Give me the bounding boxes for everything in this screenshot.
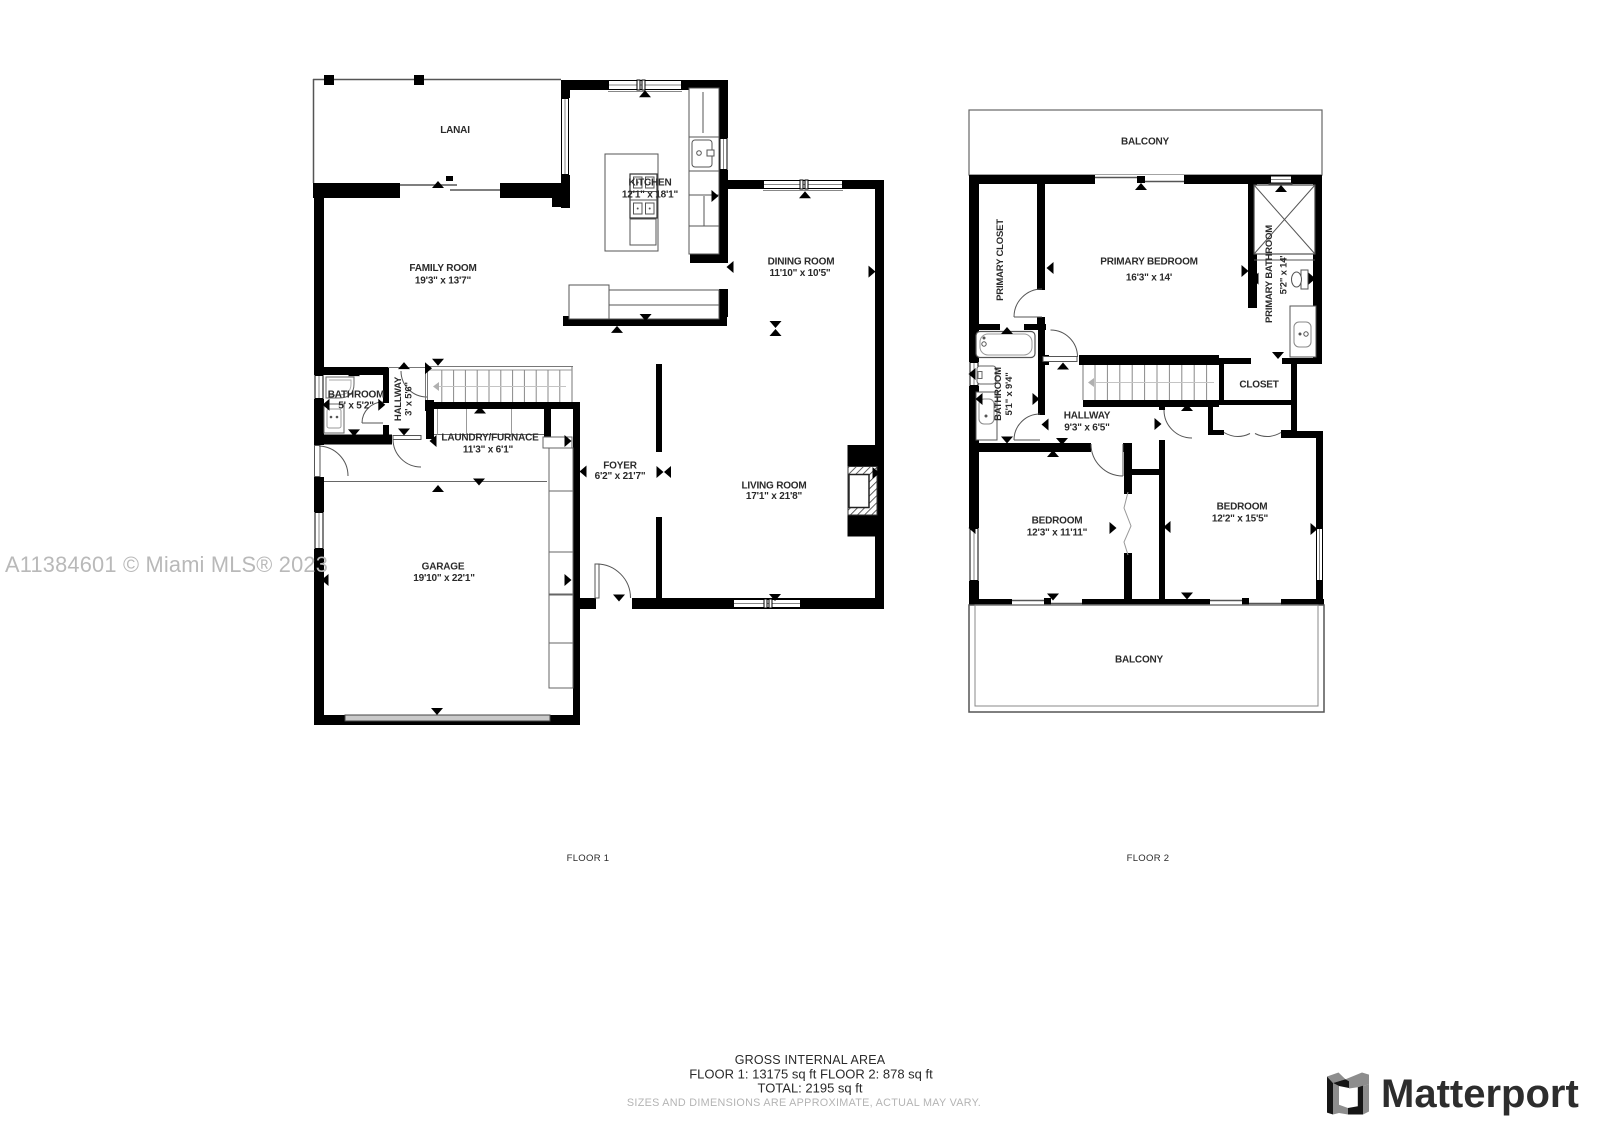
svg-text:BEDROOM: BEDROOM [1032,516,1083,527]
svg-text:FAMILY ROOM: FAMILY ROOM [409,263,476,274]
svg-text:FLOOR 2: FLOOR 2 [1127,853,1170,864]
svg-text:FLOOR 1: FLOOR 1 [567,853,610,864]
svg-text:5' x 5'2": 5' x 5'2" [338,401,374,412]
svg-text:19'10" x 22'1": 19'10" x 22'1" [413,573,475,584]
svg-text:PRIMARY BATHROOM: PRIMARY BATHROOM [1264,225,1275,323]
svg-text:5'2" x 14': 5'2" x 14' [1279,256,1290,295]
svg-text:12'3" x 11'11": 12'3" x 11'11" [1027,528,1088,539]
svg-text:9'3" x 6'5": 9'3" x 6'5" [1064,423,1110,434]
svg-text:12'1" x 18'1": 12'1" x 18'1" [622,190,679,201]
svg-text:Matterport: Matterport [1381,1072,1579,1116]
svg-text:KITCHEN: KITCHEN [628,178,671,189]
svg-text:DINING ROOM: DINING ROOM [768,257,835,268]
svg-text:FOYER: FOYER [603,461,637,472]
svg-text:LANAI: LANAI [440,125,470,136]
svg-text:BALCONY: BALCONY [1121,137,1170,148]
svg-text:GROSS INTERNAL AREA: GROSS INTERNAL AREA [735,1053,886,1067]
svg-text:TOTAL: 2195 sq ft: TOTAL: 2195 sq ft [757,1081,862,1096]
svg-text:BATHROOM: BATHROOM [993,367,1004,421]
svg-text:FLOOR 1: 13175 sq ft FLOOR 2:: FLOOR 1: 13175 sq ft FLOOR 2: 878 sq ft [689,1067,933,1082]
svg-text:BATHROOM: BATHROOM [328,390,385,401]
svg-text:PRIMARY CLOSET: PRIMARY CLOSET [995,219,1006,301]
svg-text:HALLWAY: HALLWAY [1064,411,1111,422]
svg-text:SIZES AND DIMENSIONS ARE APPRO: SIZES AND DIMENSIONS ARE APPROXIMATE, AC… [627,1097,981,1109]
svg-text:HALLWAY: HALLWAY [393,376,404,421]
svg-text:CLOSET: CLOSET [1239,380,1278,391]
svg-text:6'2" x 21'7": 6'2" x 21'7" [595,471,646,482]
svg-text:LAUNDRY/FURNACE: LAUNDRY/FURNACE [441,433,539,444]
svg-text:16'3" x 14': 16'3" x 14' [1126,273,1172,284]
svg-text:PRIMARY BEDROOM: PRIMARY BEDROOM [1100,257,1198,268]
svg-text:GARAGE: GARAGE [422,562,465,573]
svg-text:5'1" x 9'4": 5'1" x 9'4" [1004,372,1015,415]
svg-text:BEDROOM: BEDROOM [1217,502,1268,513]
svg-text:17'1" x 21'8": 17'1" x 21'8" [746,491,803,502]
svg-text:3' x 5'6": 3' x 5'6" [404,382,415,416]
svg-text:LIVING ROOM: LIVING ROOM [741,481,806,492]
svg-text:11'3" x 6'1": 11'3" x 6'1" [463,445,514,456]
svg-text:BALCONY: BALCONY [1115,655,1164,666]
svg-text:11'10" x 10'5": 11'10" x 10'5" [770,268,831,279]
svg-text:12'2" x 15'5": 12'2" x 15'5" [1212,514,1269,525]
svg-text:19'3" x 13'7": 19'3" x 13'7" [415,276,472,287]
svg-text:A11384601 © Miami MLS® 2023: A11384601 © Miami MLS® 2023 [5,552,328,577]
